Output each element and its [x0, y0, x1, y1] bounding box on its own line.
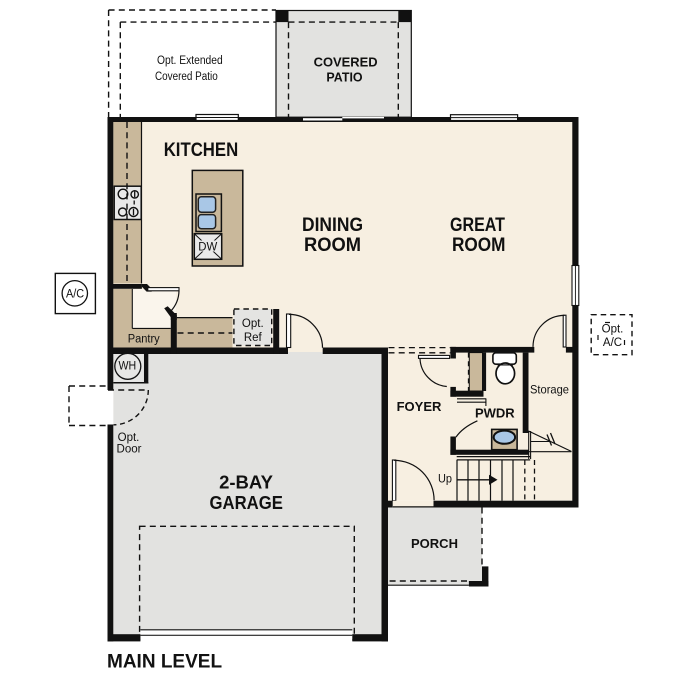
svg-text:ROOM: ROOM	[452, 234, 506, 256]
svg-text:GARAGE: GARAGE	[210, 492, 283, 513]
svg-text:ROOM: ROOM	[304, 234, 361, 256]
svg-text:PORCH: PORCH	[411, 536, 458, 551]
svg-text:PWDR: PWDR	[475, 406, 515, 421]
svg-text:WH: WH	[119, 361, 137, 373]
svg-text:Ref: Ref	[244, 332, 263, 344]
svg-text:DW: DW	[198, 241, 217, 253]
svg-text:Opt.: Opt.	[602, 324, 624, 336]
svg-text:Covered Patio: Covered Patio	[155, 71, 218, 83]
svg-text:Opt. Extended: Opt. Extended	[157, 55, 223, 67]
svg-text:Up: Up	[438, 472, 452, 486]
svg-text:COVERED: COVERED	[314, 54, 378, 69]
svg-text:Door: Door	[117, 444, 142, 456]
svg-text:Opt.: Opt.	[242, 318, 264, 330]
svg-text:DINING: DINING	[302, 214, 363, 236]
svg-text:Storage: Storage	[530, 383, 569, 397]
svg-text:A/C: A/C	[603, 337, 622, 349]
svg-text:2-BAY: 2-BAY	[219, 471, 273, 492]
svg-text:FOYER: FOYER	[397, 399, 442, 414]
svg-text:Opt.: Opt.	[118, 432, 140, 444]
svg-text:Pantry: Pantry	[128, 333, 160, 345]
svg-text:KITCHEN: KITCHEN	[164, 139, 239, 161]
svg-text:PATIO: PATIO	[326, 70, 362, 85]
svg-text:GREAT: GREAT	[450, 214, 505, 236]
svg-text:MAIN LEVEL: MAIN LEVEL	[107, 651, 222, 672]
svg-text:A/C: A/C	[66, 289, 84, 301]
